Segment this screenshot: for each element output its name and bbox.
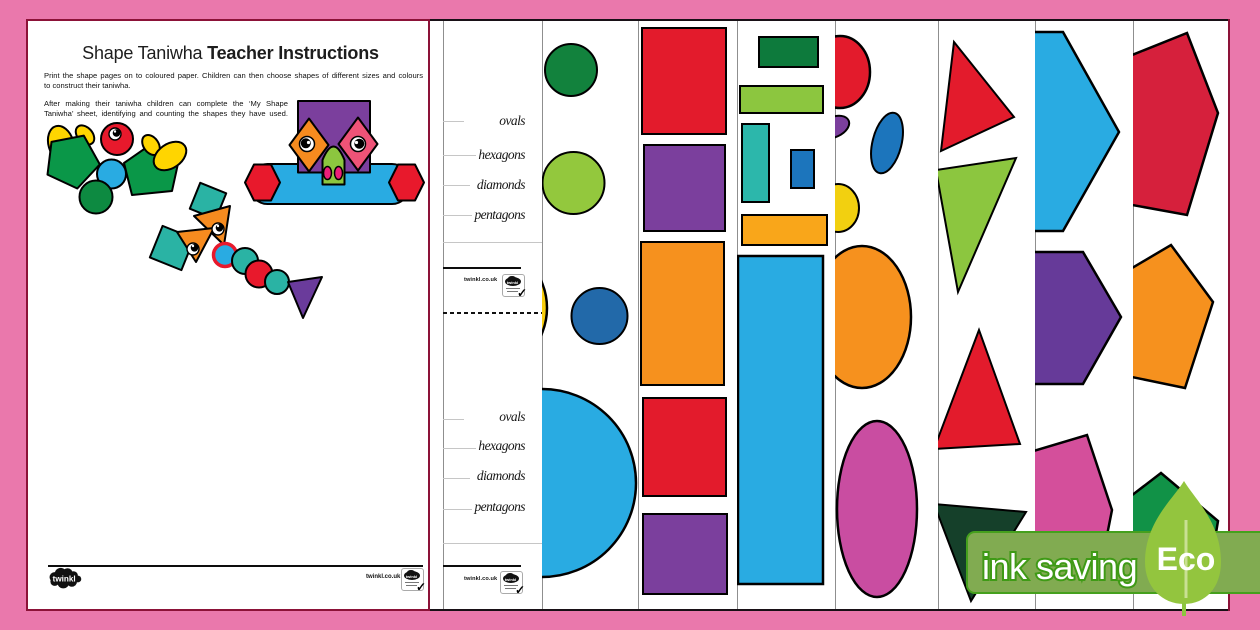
svg-text:twinkl: twinkl (53, 575, 76, 584)
svg-text:Eco: Eco (1157, 541, 1216, 577)
svg-text:ink saving: ink saving (982, 546, 1137, 587)
